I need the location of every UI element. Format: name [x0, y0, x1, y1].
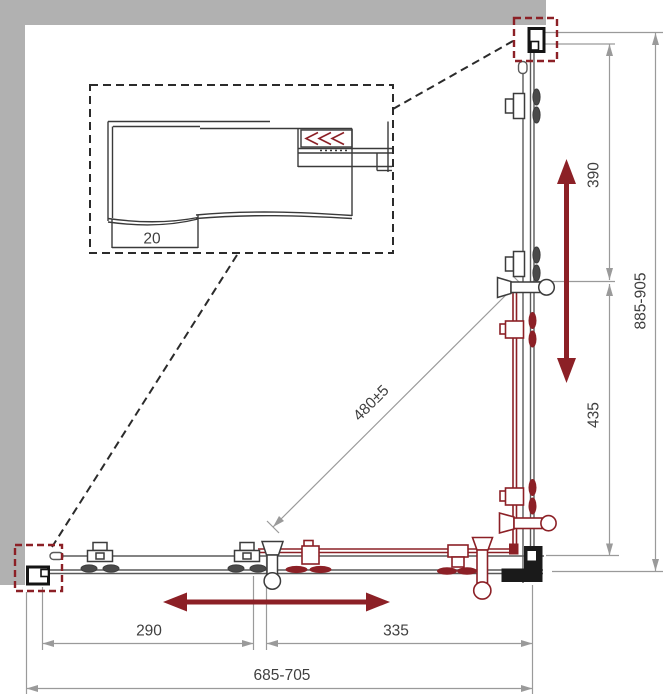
glass-clamp: [506, 247, 541, 281]
slide-arrow-vertical-icon: [557, 159, 576, 383]
track-end-cap: [519, 62, 528, 74]
glass-insert-chevrons-icon: [306, 133, 344, 145]
dim-885-905: 885-905: [633, 33, 660, 571]
profile-section-drawing: [108, 122, 392, 225]
dim-390: 390: [586, 44, 614, 280]
dim-label-885-905: 885-905: [633, 273, 650, 330]
dim-label-435: 435: [586, 402, 603, 428]
callout-frame: [90, 85, 393, 253]
wall-profile-top: [529, 29, 544, 52]
roller-carriage: [286, 541, 332, 574]
door-knob: [500, 513, 557, 533]
dim-label-480: 480±5: [350, 382, 392, 424]
technical-drawing: 390 435 885-905 290 335 685-705 48: [0, 0, 666, 700]
glass-clamp: [506, 89, 541, 123]
wall-top: [0, 0, 546, 25]
door-knob: [473, 538, 493, 600]
wall-profile-left: [28, 567, 49, 584]
detail-callout: 20: [90, 85, 393, 253]
dim-label-290: 290: [136, 623, 162, 640]
door-knob: [262, 542, 283, 590]
glass-clamp: [228, 543, 266, 573]
dim-335: 335: [267, 623, 533, 648]
dim-435: 435: [586, 284, 614, 556]
dim-label-685-705: 685-705: [254, 667, 311, 684]
glass-clamp: [81, 543, 119, 573]
callout-leader-top: [393, 41, 513, 109]
door-knob: [498, 278, 555, 298]
bottom-panel-assembly: [28, 538, 545, 600]
dim-label-335: 335: [383, 623, 409, 640]
dim-685-705: 685-705: [27, 667, 533, 692]
dim-label-390: 390: [586, 162, 603, 188]
callout-leader-bottom: [52, 255, 237, 547]
dim-290: 290: [43, 623, 254, 648]
dim-diagonal-480: 480±5: [267, 276, 525, 533]
wall-left: [0, 0, 25, 585]
slide-arrow-horizontal-icon: [163, 593, 390, 612]
right-panel-assembly: [498, 29, 557, 584]
corner-bracket: [502, 546, 543, 582]
detail-dimension-label: 20: [143, 231, 161, 248]
